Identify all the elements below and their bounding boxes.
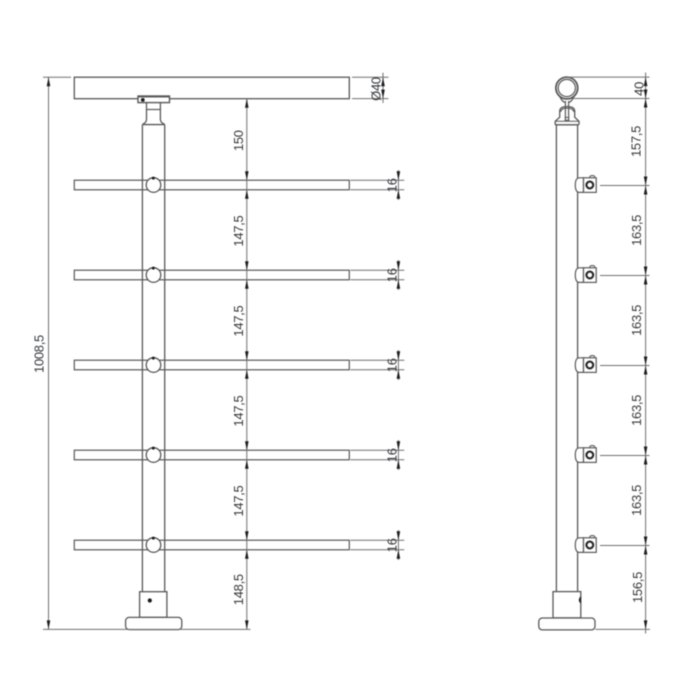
svg-text:147,5: 147,5 bbox=[231, 396, 246, 427]
svg-text:147,5: 147,5 bbox=[231, 306, 246, 337]
svg-text:156,5: 156,5 bbox=[630, 572, 645, 603]
svg-text:16: 16 bbox=[384, 178, 399, 192]
svg-text:147,5: 147,5 bbox=[231, 486, 246, 517]
svg-text:163,5: 163,5 bbox=[629, 305, 644, 336]
svg-text:1008,5: 1008,5 bbox=[32, 335, 47, 373]
svg-text:147,5: 147,5 bbox=[231, 216, 246, 247]
svg-text:148,5: 148,5 bbox=[231, 574, 246, 605]
svg-text:Ø40: Ø40 bbox=[368, 77, 383, 101]
svg-text:16: 16 bbox=[384, 268, 399, 282]
svg-text:163,5: 163,5 bbox=[629, 485, 644, 516]
svg-text:163,5: 163,5 bbox=[629, 215, 644, 246]
svg-text:16: 16 bbox=[384, 358, 399, 372]
svg-text:16: 16 bbox=[384, 448, 399, 462]
svg-text:163,5: 163,5 bbox=[629, 395, 644, 426]
svg-text:150: 150 bbox=[231, 130, 246, 151]
svg-text:40: 40 bbox=[631, 82, 646, 96]
svg-text:16: 16 bbox=[384, 538, 399, 552]
svg-text:157,5: 157,5 bbox=[628, 126, 643, 157]
